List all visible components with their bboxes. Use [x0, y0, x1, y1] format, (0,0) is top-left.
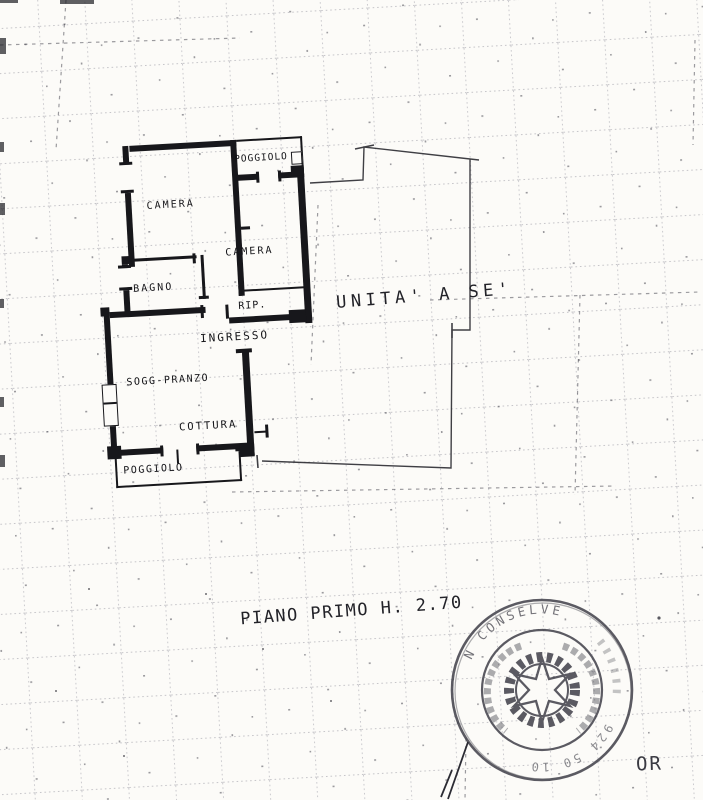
door-jamb	[200, 305, 204, 318]
room-label-cottura: COTTURA	[179, 418, 238, 433]
floor-plan: POGGIOLO CAMERA CAMERA BAGNO RIP. INGRES…	[0, 0, 703, 800]
balcony-rail	[115, 458, 119, 488]
scan-artifact	[0, 299, 4, 308]
door-jamb	[225, 305, 229, 319]
balcony-rail	[116, 479, 242, 488]
door-jamb	[278, 170, 282, 181]
wall	[241, 286, 304, 292]
room-label-poggiolo-bottom: POGGIOLO	[123, 462, 184, 476]
wall-junction	[100, 307, 109, 316]
scan-speckle	[205, 593, 207, 595]
scan-speckle	[88, 588, 90, 590]
door-jamb	[265, 425, 269, 438]
room-label-poggiolo-top: POGGIOLO	[234, 151, 288, 165]
or-mark: OR	[636, 753, 664, 776]
wall-junction	[107, 446, 122, 460]
wall	[242, 350, 255, 455]
door-jamb	[160, 445, 164, 456]
room-label-ingresso: INGRESSO	[200, 328, 270, 345]
balcony-rail	[236, 136, 302, 142]
window-tick	[119, 287, 132, 291]
scan-artifact	[0, 203, 5, 215]
door-jamb	[196, 443, 200, 454]
scanned-floor-plan-page: POGGIOLO CAMERA CAMERA BAGNO RIP. INGRES…	[0, 0, 703, 800]
scan-artifact	[0, 397, 4, 407]
scan-artifact	[0, 142, 4, 152]
room-label-camera-left: CAMERA	[146, 198, 195, 212]
wall-junction	[121, 256, 129, 264]
scan-artifact	[0, 455, 5, 467]
wall	[297, 167, 313, 323]
door-jamb	[199, 296, 209, 300]
scan-artifact	[0, 38, 6, 54]
room-label-bagno: BAGNO	[133, 282, 174, 295]
window-symbol	[102, 384, 119, 427]
balcony-door-symbol	[291, 151, 303, 165]
room-label-sogg-pranzo: SOGG-PRANZO	[126, 373, 209, 389]
door-jamb	[192, 253, 196, 263]
door-jamb	[236, 348, 252, 353]
wall-junction	[289, 309, 307, 323]
door-jamb	[256, 172, 260, 183]
wall	[131, 255, 197, 262]
scan-speckle	[262, 648, 264, 650]
door-jamb	[241, 226, 250, 229]
scan-speckle	[330, 700, 332, 702]
scan-artifact	[60, 0, 94, 4]
wall-junction	[239, 443, 255, 457]
wall	[200, 255, 205, 299]
wall-junction	[291, 165, 305, 176]
scan-speckle	[55, 690, 57, 692]
scan-artifact	[0, 0, 18, 3]
wall	[129, 140, 236, 152]
room-label-camera-right: CAMERA	[225, 245, 274, 259]
wall	[236, 174, 258, 181]
door-jamb	[238, 286, 242, 296]
room-label-rip: RIP.	[238, 299, 267, 312]
scan-speckle	[123, 755, 125, 757]
window-tick	[121, 190, 134, 194]
